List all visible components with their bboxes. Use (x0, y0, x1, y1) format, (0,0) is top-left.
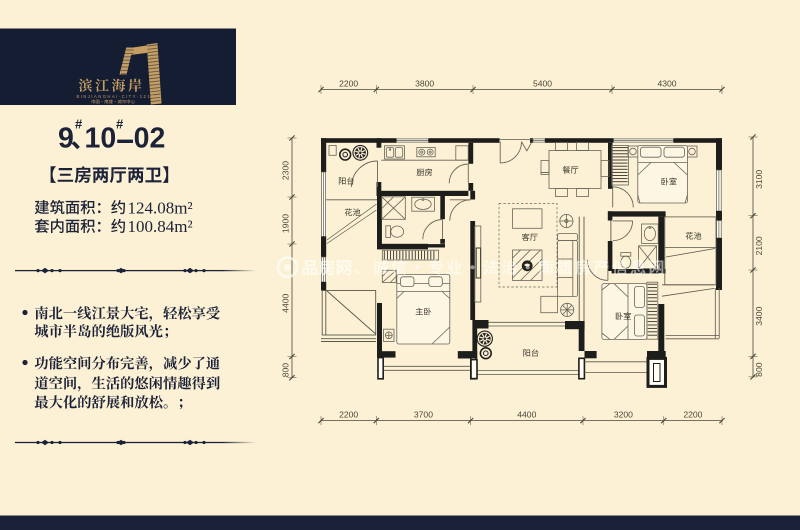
svg-text:2100: 2100 (754, 236, 764, 255)
svg-text:3700: 3700 (414, 409, 433, 419)
svg-text:4400: 4400 (281, 293, 291, 312)
svg-text:02: 02 (134, 123, 166, 155)
svg-text:124.08m²: 124.08m² (128, 198, 193, 217)
svg-text:2300: 2300 (281, 161, 291, 180)
svg-text:4400: 4400 (517, 409, 536, 419)
svg-text:5400: 5400 (533, 78, 552, 88)
svg-text:BINJIANGHAI·CITY·1217: BINJIANGHAI·CITY·1217 (77, 94, 155, 99)
svg-text:3200: 3200 (614, 409, 633, 419)
svg-text:#: # (116, 117, 124, 132)
svg-text:2200: 2200 (683, 409, 702, 419)
svg-text:3100: 3100 (754, 170, 764, 189)
svg-text:100.84m²: 100.84m² (128, 217, 193, 236)
svg-text:2200: 2200 (339, 409, 358, 419)
svg-text:2200: 2200 (339, 78, 358, 88)
svg-text:10: 10 (85, 123, 117, 155)
svg-text:3800: 3800 (415, 78, 434, 88)
svg-text:800: 800 (754, 362, 764, 377)
svg-text:4300: 4300 (657, 78, 676, 88)
svg-text:3400: 3400 (754, 306, 764, 325)
svg-text:9: 9 (58, 123, 74, 155)
svg-text:1900: 1900 (281, 214, 291, 233)
svg-text:#: # (75, 117, 83, 132)
svg-text:800: 800 (281, 363, 291, 378)
